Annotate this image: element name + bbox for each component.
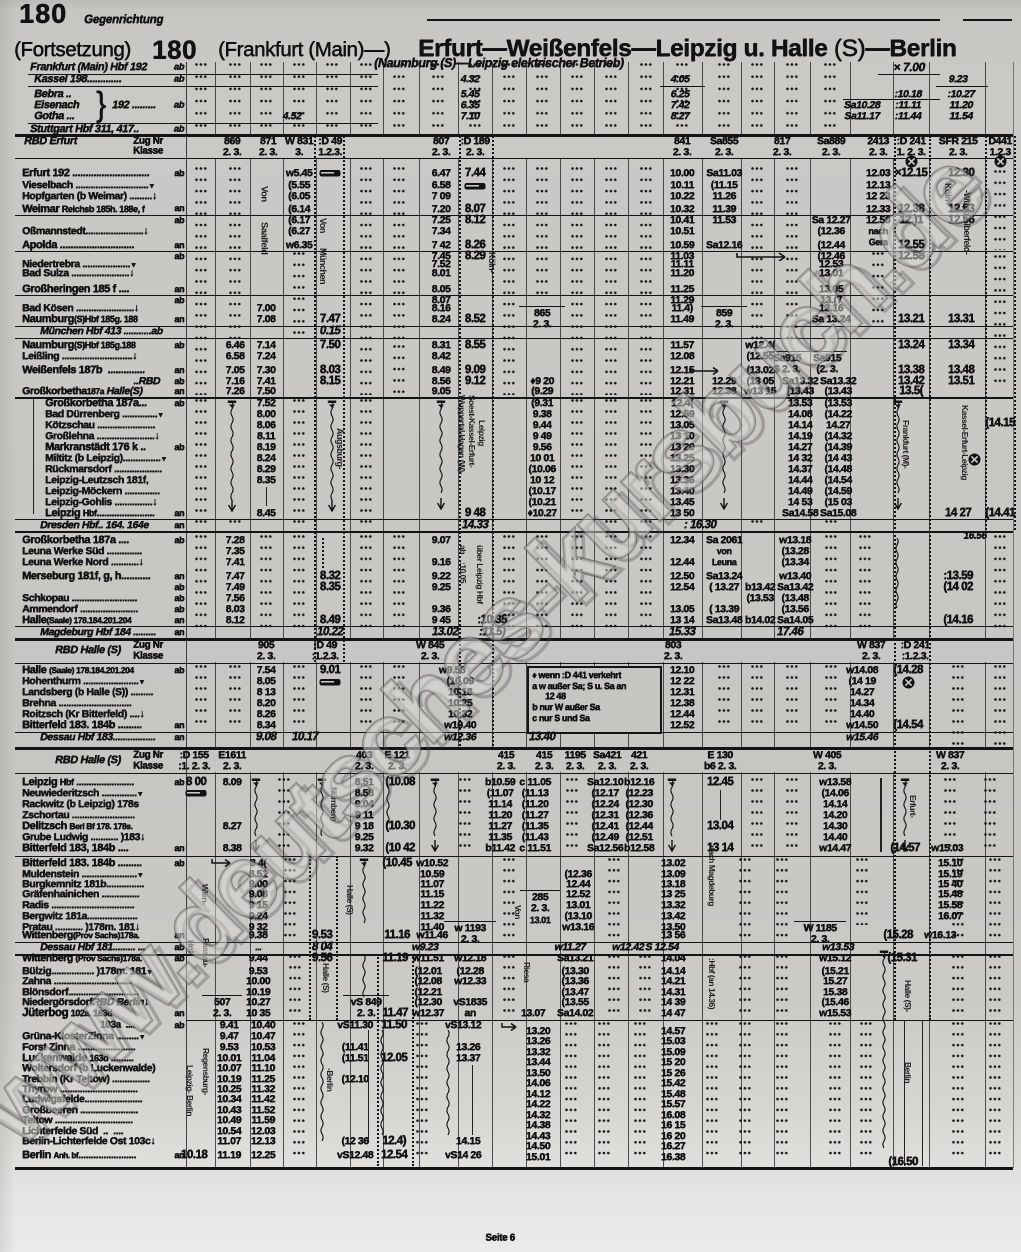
svg-text:www.deutsches-kursbuch.de: www.deutsches-kursbuch.de [0,130,1006,1167]
